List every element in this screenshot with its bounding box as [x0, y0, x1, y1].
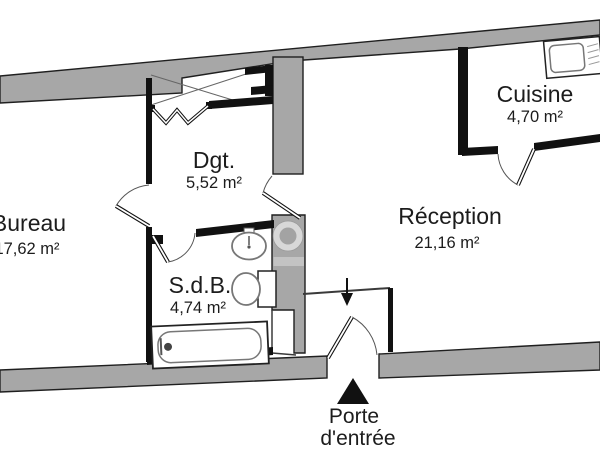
room-name-sdb: S.d.B.: [169, 272, 232, 298]
toilet-icon: [232, 271, 276, 307]
wall-vestibule-right: [388, 288, 393, 352]
room-label-bureau: Bureau 17,62 m²: [0, 210, 66, 258]
floor-plan-canvas: Bureau 17,62 m² Dgt. 5,52 m² S.d.B. 4,74…: [0, 0, 600, 450]
wall-column-upper: [273, 57, 303, 174]
entrance-label-line1: Porte: [329, 405, 379, 428]
room-name-cuisine: Cuisine: [497, 81, 574, 107]
room-area-cuisine: 4,70 m²: [507, 108, 563, 126]
wall-bureau-upper: [146, 78, 152, 184]
room-name-reception: Réception: [398, 203, 502, 229]
room-label-dgt: Dgt. 5,52 m²: [186, 147, 242, 192]
room-area-dgt: 5,52 m²: [186, 174, 242, 192]
room-area-sdb: 4,74 m²: [170, 299, 226, 317]
water-heater-icon: [273, 221, 304, 266]
room-label-sdb: S.d.B. 4,74 m²: [169, 272, 232, 317]
room-name-bureau: Bureau: [0, 210, 66, 236]
bathtub-icon: [151, 321, 269, 368]
entrance-label-line2: d'entrée: [320, 427, 395, 450]
room-area-bureau: 17,62 m²: [0, 240, 60, 258]
room-name-dgt: Dgt.: [193, 147, 235, 173]
room-label-cuisine: Cuisine 4,70 m²: [497, 81, 574, 126]
room-area-reception: 21,16 m²: [414, 234, 480, 252]
wall-kitchen-left: [458, 47, 468, 155]
kitchen-sink-icon: [544, 37, 600, 79]
